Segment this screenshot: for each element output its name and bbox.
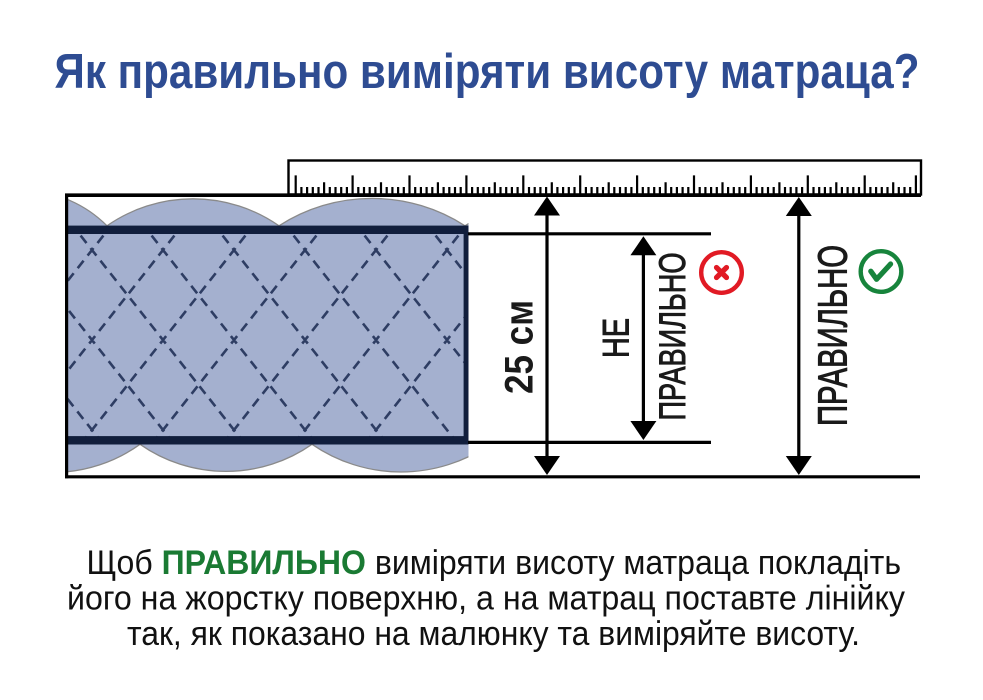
svg-text:25 см: 25 см xyxy=(498,300,542,394)
svg-text:Щоб ПРАВИЛЬНО виміряти висоту: Щоб ПРАВИЛЬНО виміряти висоту матраца по… xyxy=(87,544,902,582)
svg-text:його на жорстку поверхню, а на: його на жорстку поверхню, а на матрац по… xyxy=(67,580,905,618)
svg-text:ПРАВИЛЬНО: ПРАВИЛЬНО xyxy=(810,245,856,426)
svg-text:так, як показано на малюнку та: так, як показано на малюнку та виміряйте… xyxy=(127,615,860,653)
svg-text:НЕ: НЕ xyxy=(596,318,637,358)
svg-text:Як правильно виміряти висоту м: Як правильно виміряти висоту матраца? xyxy=(55,45,920,99)
svg-text:ПРАВИЛЬНО: ПРАВИЛЬНО xyxy=(652,253,693,421)
